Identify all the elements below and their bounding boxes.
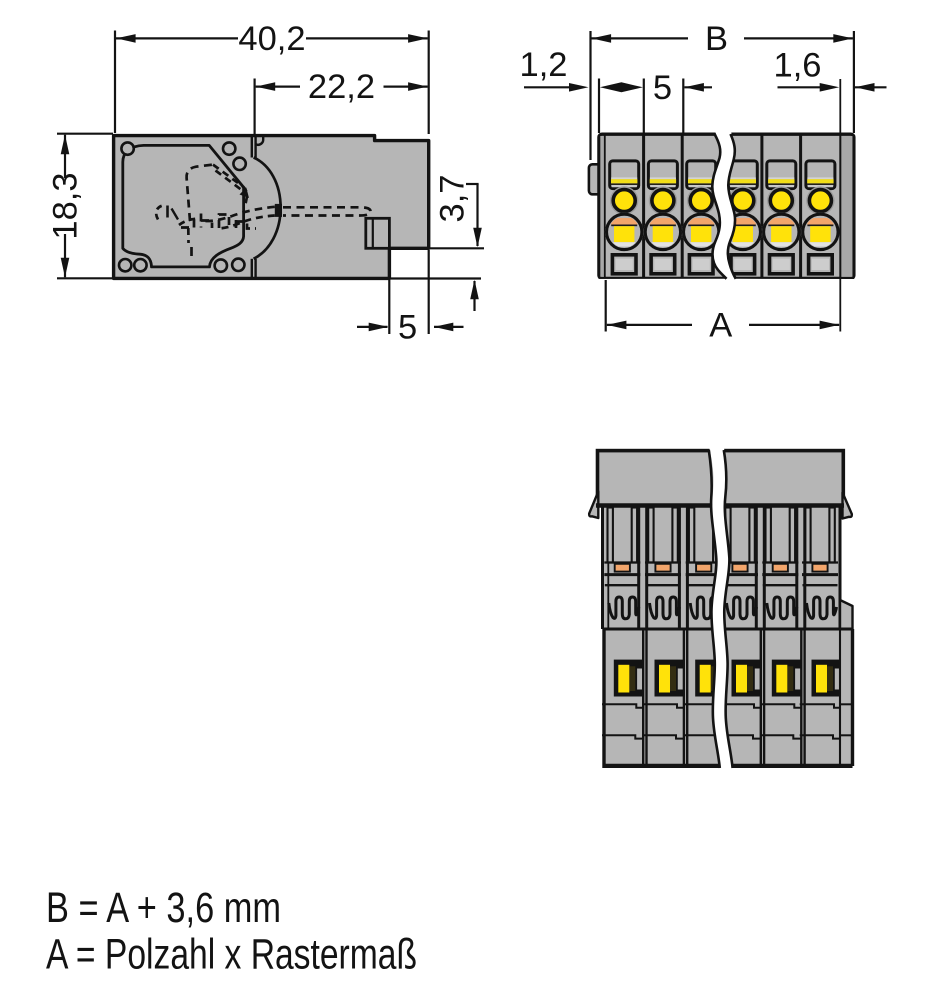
svg-text:B: B <box>705 20 728 58</box>
svg-text:1,6: 1,6 <box>774 46 822 84</box>
svg-text:22,2: 22,2 <box>308 68 375 106</box>
svg-text:5: 5 <box>398 308 417 346</box>
svg-text:A = Polzahl x Rastermaß: A = Polzahl x Rastermaß <box>46 931 417 979</box>
svg-text:5: 5 <box>653 69 672 107</box>
svg-text:B = A + 3,6 mm: B = A + 3,6 mm <box>46 884 281 932</box>
svg-text:A: A <box>709 306 732 344</box>
svg-text:40,2: 40,2 <box>238 20 305 58</box>
svg-text:18,3: 18,3 <box>47 172 85 239</box>
svg-text:1,2: 1,2 <box>520 46 568 84</box>
svg-text:3,7: 3,7 <box>434 175 472 223</box>
